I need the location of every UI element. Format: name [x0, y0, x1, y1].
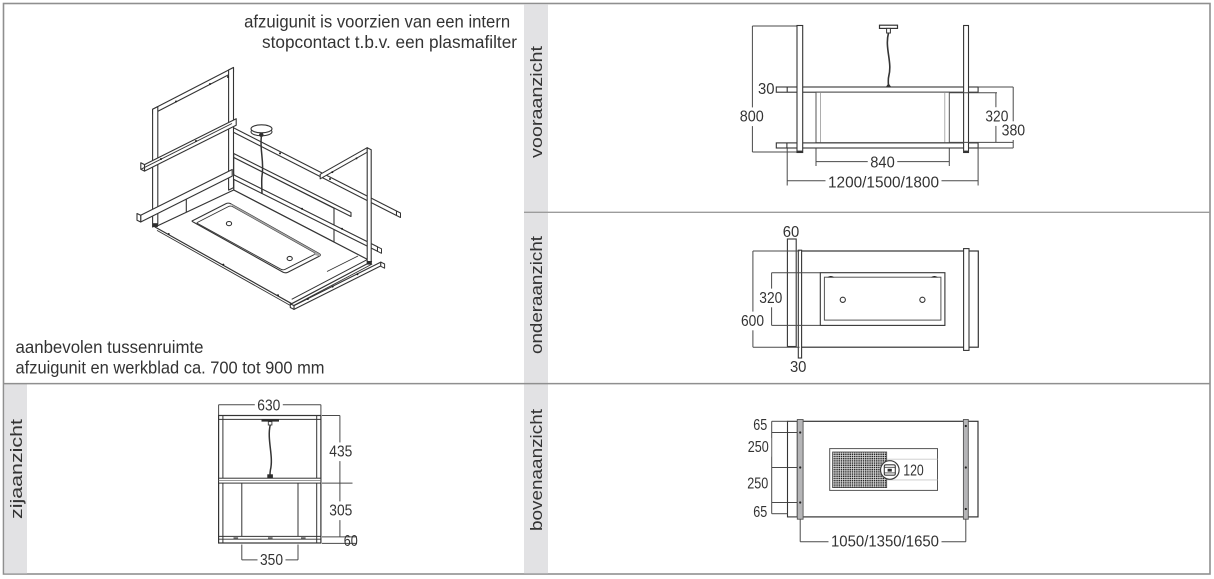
- svg-text:bovenaanzicht: bovenaanzicht: [527, 409, 546, 531]
- svg-text:onderaanzicht: onderaanzicht: [527, 236, 546, 354]
- svg-text:630: 630: [257, 398, 280, 415]
- svg-text:1050/1350/1650: 1050/1350/1650: [831, 534, 939, 551]
- svg-text:250: 250: [748, 439, 769, 456]
- svg-text:435: 435: [329, 444, 352, 461]
- svg-text:60: 60: [344, 533, 358, 550]
- svg-text:800: 800: [740, 109, 764, 126]
- svg-text:305: 305: [329, 503, 352, 520]
- svg-text:1200/1500/1800: 1200/1500/1800: [828, 174, 939, 191]
- svg-text:600: 600: [741, 313, 764, 330]
- svg-text:120: 120: [903, 463, 924, 480]
- svg-text:840: 840: [870, 154, 895, 171]
- svg-text:320: 320: [759, 290, 782, 307]
- svg-text:30: 30: [758, 81, 775, 98]
- svg-text:65: 65: [753, 504, 767, 521]
- svg-text:vooraanzicht: vooraanzicht: [527, 46, 546, 158]
- svg-text:60: 60: [783, 224, 800, 241]
- svg-text:350: 350: [260, 552, 283, 569]
- svg-text:afzuigunit is voorzien van een: afzuigunit is voorzien van een intern st…: [244, 12, 517, 52]
- svg-text:zijaanzicht: zijaanzicht: [7, 419, 26, 519]
- svg-text:65: 65: [753, 417, 767, 434]
- svg-text:250: 250: [747, 475, 768, 492]
- svg-text:30: 30: [790, 359, 807, 376]
- svg-text:380: 380: [1002, 123, 1026, 140]
